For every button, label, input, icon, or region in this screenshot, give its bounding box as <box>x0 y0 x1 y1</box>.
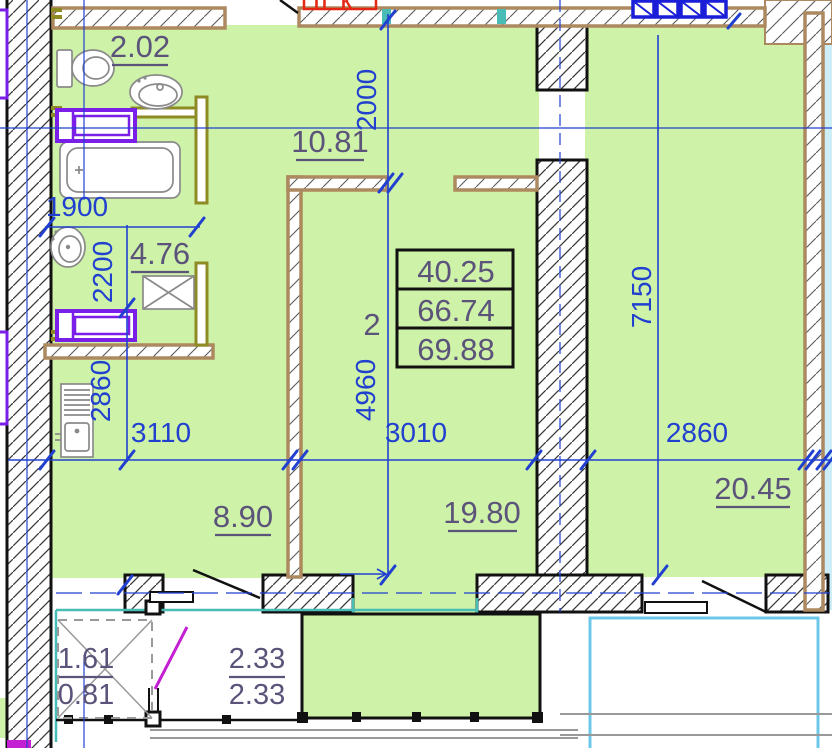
faucet-dot <box>54 230 57 233</box>
window-strip-fill <box>352 575 479 614</box>
balcony1-upper-area: 1.61 <box>58 643 114 675</box>
pipe-mark <box>51 8 62 12</box>
mullion <box>412 712 421 722</box>
toilet-bowl <box>72 50 114 86</box>
mullion <box>297 712 308 723</box>
faucet-dot <box>143 76 146 79</box>
balcony2-lower-area: 2.33 <box>229 679 285 711</box>
wall-living-top-a <box>288 177 387 190</box>
dim-living-width: 3010 <box>385 417 447 448</box>
wall-kitchen-divider <box>45 345 213 358</box>
total-area-value: 69.88 <box>417 332 495 367</box>
riser-top <box>0 10 7 98</box>
dim-wc-width: 1900 <box>46 191 108 222</box>
mullion <box>470 712 479 722</box>
vent-duct <box>497 9 506 24</box>
mullion <box>352 712 361 722</box>
wall-right <box>805 13 823 610</box>
dim-hall-width: 2000 <box>351 69 382 131</box>
floor-plan-drawing: ПК 40.25 66.74 69.88 2 2.02 10.81 4.76 8… <box>0 0 832 748</box>
room-label-bath: 4.76 <box>130 236 190 271</box>
faucet-dot <box>137 79 140 82</box>
room-label-wc: 2.02 <box>110 29 170 64</box>
wall-living-left <box>288 177 301 577</box>
wall-bath-side-upper <box>196 97 207 203</box>
mullion <box>222 715 231 724</box>
wall-left <box>7 0 51 748</box>
dim-bath-depth: 2200 <box>87 241 118 303</box>
edge-sliver-fill <box>0 698 6 738</box>
faucet-dot <box>51 237 54 240</box>
wall-bath-side-lower <box>196 263 207 345</box>
wall-center <box>537 160 587 575</box>
wall-top-left <box>53 8 225 28</box>
wall-living-top-b <box>455 177 537 190</box>
dim-bedroom-depth: 7150 <box>626 266 657 328</box>
kitchen-sink-drain <box>75 429 80 434</box>
balcony-green <box>302 614 540 718</box>
unit-number: 2 <box>363 307 380 342</box>
stamp: ПК <box>304 0 376 12</box>
stamp-label: ПК <box>314 0 366 12</box>
mullion <box>104 715 113 724</box>
room-label-living: 19.80 <box>443 495 521 530</box>
dim-living-depth: 4960 <box>350 359 381 421</box>
floor-plan: ПК 40.25 66.74 69.88 2 2.02 10.81 4.76 8… <box>0 0 832 748</box>
mullion <box>532 712 543 723</box>
pipe-mark <box>51 15 62 19</box>
door-sill <box>645 602 707 613</box>
apartment-area-value: 66.74 <box>417 293 495 328</box>
dim-bedroom-width: 2860 <box>666 417 728 448</box>
dim-kitchen-width: 3110 <box>131 417 191 448</box>
room-label-bedroom: 20.45 <box>714 471 792 506</box>
radiator-bath-inner <box>75 317 129 334</box>
mullion <box>64 715 73 724</box>
dim-kitchen-depth: 2860 <box>85 360 116 422</box>
living-area-value: 40.25 <box>417 254 495 289</box>
wall-wc-bath-divider <box>132 108 196 117</box>
riser-mid <box>0 332 7 424</box>
balcony1-lower-area: 0.81 <box>58 679 114 711</box>
radiator-wc-inner <box>75 116 129 135</box>
room-label-kitchen: 8.90 <box>213 499 273 534</box>
toilet-tank <box>57 50 72 87</box>
balcony2-upper-area: 2.33 <box>229 643 285 675</box>
bath-sink-drain <box>66 245 70 249</box>
